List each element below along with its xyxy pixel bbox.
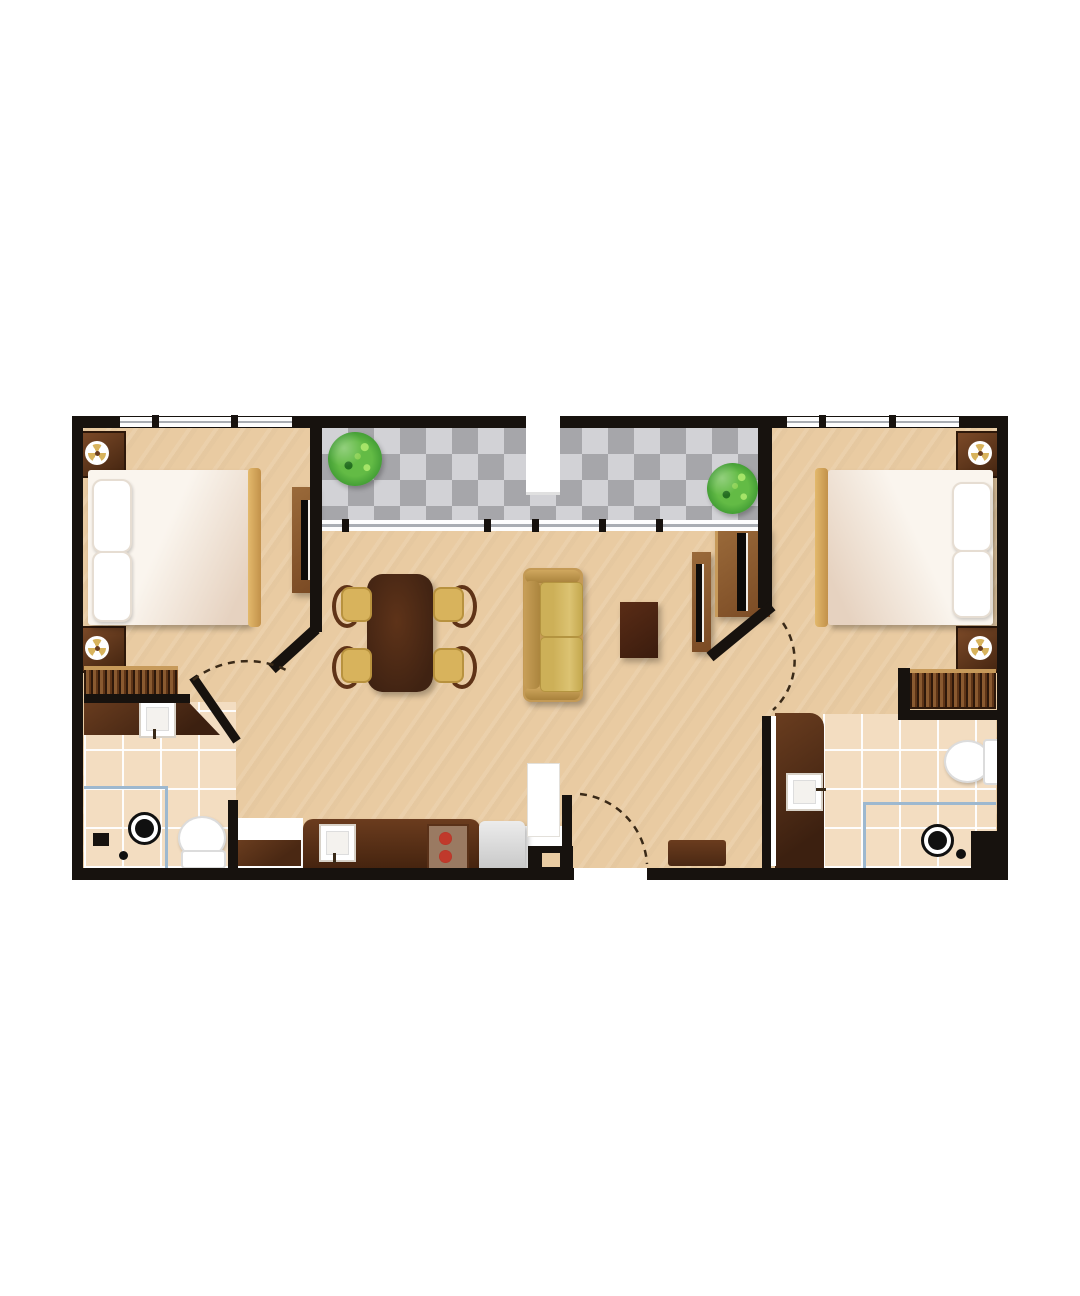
door-swing-arc-bedroom2	[773, 623, 795, 710]
door-leaf-bathroom1	[193, 677, 237, 741]
floorplan-canvas	[0, 0, 1080, 1296]
door-swing-arc-entry	[580, 794, 647, 864]
door-leaf-bedroom2	[710, 606, 772, 657]
angled-wall-bedroom1	[272, 629, 316, 669]
doors-overlay	[0, 0, 1080, 1296]
